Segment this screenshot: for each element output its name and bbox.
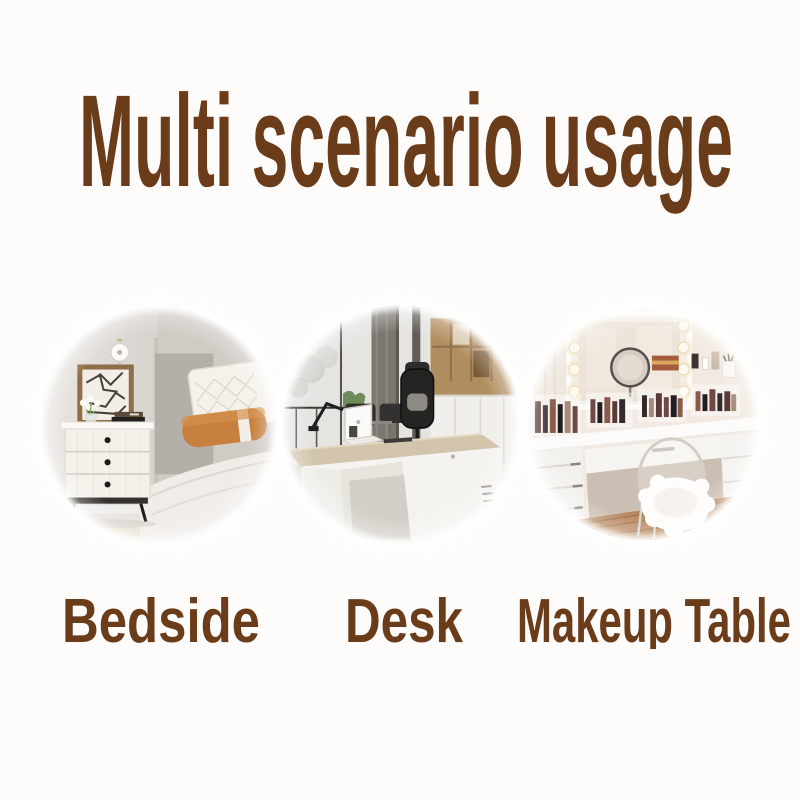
desk-label-banner: Desk: [334, 585, 474, 649]
desk-label: Desk: [345, 587, 463, 649]
bedside-label-banner: Bedside: [50, 585, 272, 649]
desk-photo-illustration: [282, 306, 520, 544]
makeup-table-label: Makeup Table: [517, 587, 791, 649]
title-banner: Multi scenario usage: [70, 78, 742, 218]
page-title: Multi scenario usage: [79, 78, 733, 214]
bedside-photo-illustration: [41, 307, 277, 543]
bedside-photo: [41, 307, 277, 543]
bedside-label: Bedside: [62, 587, 260, 649]
makeup-table-photo: [527, 308, 759, 540]
makeup-table-label-banner: Makeup Table: [510, 585, 798, 649]
makeup-table-photo-illustration: [527, 308, 759, 540]
desk-photo: [282, 306, 520, 544]
